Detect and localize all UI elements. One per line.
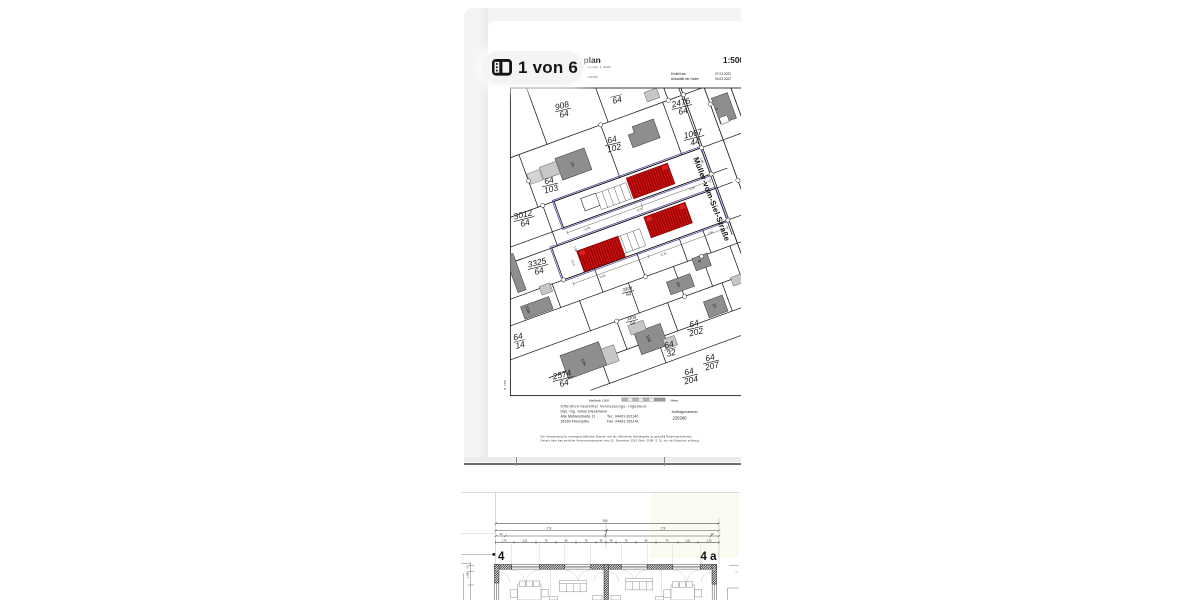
svg-text:5,99: 5,99 [599, 273, 606, 279]
svg-text:8,76: 8,76 [660, 251, 667, 257]
svg-text:7,9: 7,9 [661, 527, 666, 531]
svg-text:Aktualität der Daten: Aktualität der Daten [671, 77, 699, 81]
svg-text:4: 4 [498, 551, 505, 563]
svg-text:64: 64 [625, 291, 632, 297]
svg-text:8,76: 8,76 [637, 206, 644, 212]
svg-text:07.03.2022: 07.03.2022 [715, 72, 731, 76]
svg-text:26169 Friesoythe: 26169 Friesoythe [561, 420, 590, 424]
svg-text:76: 76 [545, 539, 548, 542]
svg-text:03.03.2022: 03.03.2022 [715, 77, 731, 81]
svg-text:1:500: 1:500 [723, 56, 744, 65]
svg-text:64: 64 [558, 108, 570, 120]
svg-text:Meter: Meter [671, 398, 679, 402]
svg-text:220760: 220760 [587, 75, 598, 79]
svg-text:76: 76 [625, 539, 628, 542]
svg-text:13: 13 [500, 532, 503, 536]
svg-text:1,76: 1,76 [502, 539, 507, 542]
svg-text:Die Verwendung für rechtsgesch: Die Verwendung für rechtsgeschäftliche Z… [541, 435, 693, 439]
svg-text:75: 75 [466, 566, 470, 569]
svg-text:Dipl.-Ing. Julius Dieckmann: Dipl.-Ing. Julius Dieckmann [561, 410, 607, 414]
svg-text:88: 88 [645, 539, 648, 542]
svg-text:Maßstab 1:500: Maßstab 1:500 [589, 398, 609, 402]
svg-text:1,76: 1,76 [707, 539, 712, 542]
svg-text:M. 1:500: M. 1:500 [503, 379, 507, 390]
svg-text:Erstellt am: Erstellt am [671, 72, 686, 76]
svg-text:Gemark. 1, Stadt: Gemark. 1, Stadt [587, 65, 611, 69]
svg-text:49: 49 [610, 539, 613, 542]
svg-text:Gesetz über das amtliche Verme: Gesetz über das amtliche Vermessungswese… [541, 439, 701, 443]
svg-text:64: 64 [611, 94, 623, 106]
svg-text:1,985: 1,985 [466, 571, 470, 578]
svg-text:64: 64 [519, 217, 531, 229]
svg-text:14,0: 14,0 [570, 259, 576, 266]
svg-text:plan: plan [584, 55, 601, 65]
svg-text:14: 14 [514, 339, 526, 351]
svg-text:9,9: 9,9 [603, 519, 608, 523]
svg-text:76: 76 [585, 539, 588, 542]
svg-text:Fax: 04491-921141: Fax: 04491-921141 [607, 420, 639, 424]
svg-text:Auftragsnummer:: Auftragsnummer: [672, 410, 699, 414]
svg-text:Alte Mühlenstraße 11: Alte Mühlenstraße 11 [561, 415, 596, 419]
svg-text:64: 64 [533, 265, 545, 277]
svg-text:5,99: 5,99 [584, 226, 591, 232]
svg-text:1,01: 1,01 [523, 539, 528, 542]
svg-text:7,9: 7,9 [547, 527, 552, 531]
svg-text:1,01: 1,01 [686, 539, 691, 542]
svg-text:Öffentlich bestellter Vermessu: Öffentlich bestellter Vermessungs- Ingen… [561, 405, 648, 409]
svg-text:103: 103 [543, 182, 559, 195]
svg-text:4 a: 4 a [701, 551, 718, 563]
svg-text:102: 102 [606, 141, 622, 154]
svg-text:88: 88 [565, 539, 568, 542]
svg-text:Tel.: 04491-921140: Tel.: 04491-921140 [607, 415, 639, 419]
svg-text:220260: 220260 [673, 415, 688, 420]
svg-text:32: 32 [665, 347, 677, 359]
svg-text:49: 49 [600, 539, 603, 542]
